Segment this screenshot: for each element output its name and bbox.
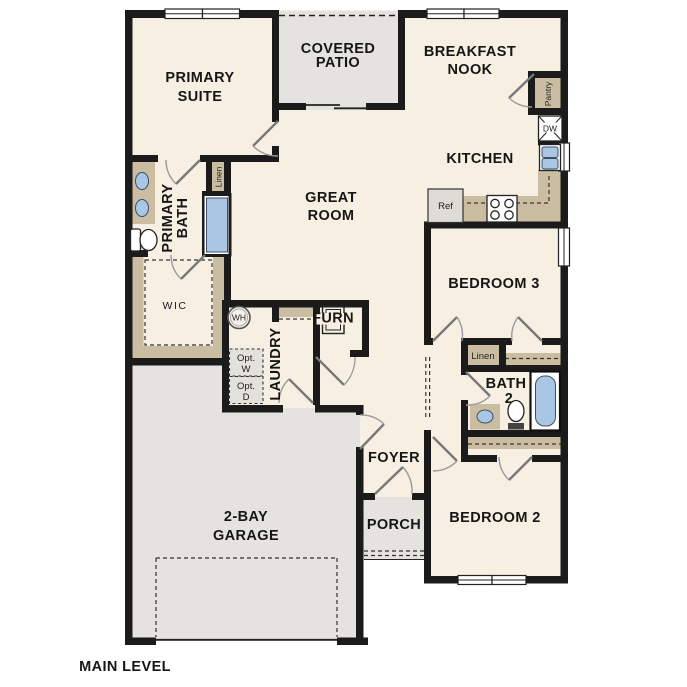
porch-label: PORCH xyxy=(367,517,421,533)
kitchen-sink-icon xyxy=(540,145,561,171)
opt-washer-label: Opt. xyxy=(237,353,255,364)
furnace-label: FURN xyxy=(312,311,354,327)
laundry-label: LAUNDRY xyxy=(268,327,284,400)
opt-washer-label2: W xyxy=(242,364,251,375)
garage-label: 2-BAY xyxy=(224,509,268,525)
outside-mask xyxy=(364,560,426,586)
primary-bath-label2: BATH xyxy=(175,198,191,239)
primary-suite-label: PRIMARY xyxy=(165,70,234,86)
wic-label: WIC xyxy=(163,300,188,312)
garage-label2: GARAGE xyxy=(213,528,279,544)
dishwasher-label: DW xyxy=(543,124,557,134)
linen-hall-label: Linen xyxy=(471,351,494,362)
sink-icon xyxy=(136,173,149,190)
main-level-title: MAIN LEVEL xyxy=(79,659,171,675)
bedroom3-label: BEDROOM 3 xyxy=(448,276,539,292)
opt-dryer-label2: D xyxy=(243,392,250,403)
linen-bath-label: Linen xyxy=(214,166,224,187)
bedroom2-closet-shelf xyxy=(468,437,561,449)
breakfast-nook-label2: NOOK xyxy=(447,62,492,78)
bathtub-icon xyxy=(531,372,561,431)
toilet-icon xyxy=(131,229,158,251)
kitchen-label: KITCHEN xyxy=(446,151,513,167)
water-heater-label: WH xyxy=(232,313,246,323)
great-room-label: GREAT xyxy=(305,190,357,206)
floor-plan: PRIMARY SUITE COVERED PATIO BREAKFAST NO… xyxy=(0,0,687,687)
opt-dryer-label: Opt. xyxy=(237,381,255,392)
primary-bath-label: PRIMARY xyxy=(160,183,176,252)
laundry-shelf xyxy=(279,307,313,317)
wic-shelf-left xyxy=(133,257,144,358)
covered-patio-label2: PATIO xyxy=(316,55,360,71)
bedroom2-label: BEDROOM 2 xyxy=(449,510,540,526)
bath2-label2: 2 xyxy=(505,391,513,407)
foyer-label: FOYER xyxy=(368,450,420,466)
sink-icon xyxy=(477,410,493,423)
great-room-label2: ROOM xyxy=(308,208,355,224)
breakfast-nook-label: BREAKFAST xyxy=(424,44,516,60)
pantry-label: Pantry xyxy=(543,81,553,106)
floor-plan-canvas: PRIMARY SUITE COVERED PATIO BREAKFAST NO… xyxy=(0,0,687,687)
shower-icon xyxy=(202,193,232,257)
wic-shelf-bottom xyxy=(133,346,225,358)
sink-icon xyxy=(136,200,149,217)
primary-suite-label2: SUITE xyxy=(178,89,223,105)
bath2-label: BATH xyxy=(486,376,527,392)
stove-icon xyxy=(487,196,517,223)
refrigerator-label: Ref xyxy=(438,201,453,212)
